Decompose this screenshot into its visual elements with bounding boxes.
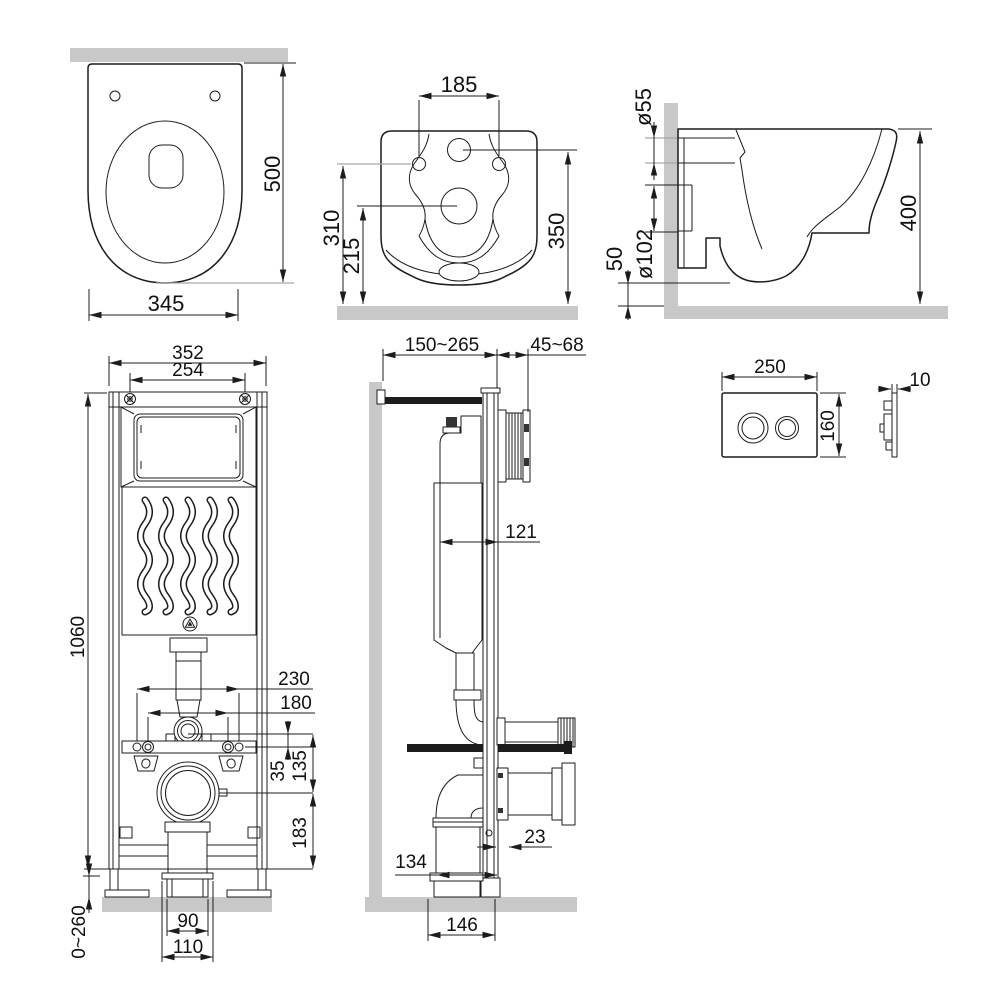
leg-left [110, 869, 118, 890]
bracket-right [219, 756, 243, 771]
clip-left [120, 827, 132, 838]
toilet-rear-outline [381, 131, 537, 285]
flush-outlet-pipe [497, 718, 575, 747]
foot-plate-right [227, 890, 271, 897]
dim-label-drain-to-base: 183 [290, 817, 311, 849]
flush-elbow [456, 700, 484, 745]
view-toilet-side: ø55 ø102 50 400 [602, 88, 948, 320]
dim-label-frame-height: 1060 [68, 616, 89, 658]
dim-side-depth: 400 [896, 129, 932, 304]
inspection-window [121, 407, 256, 487]
rear-outlet-bump [439, 263, 479, 281]
dim-label-plate-width: 250 [754, 357, 786, 378]
cistern-tank [122, 487, 256, 635]
frame-profile [481, 388, 500, 897]
wall-section [70, 48, 288, 62]
toilet-water-surface [149, 145, 183, 188]
dim-label-side-depth: 400 [896, 195, 921, 232]
dim-inlet-height: 350 [544, 152, 569, 304]
insulation-waves [141, 500, 236, 612]
dim-drain-to-base: 183 [290, 794, 313, 868]
dim-label-tank-depth: 121 [505, 522, 537, 543]
dim-holes-height: 310 [319, 166, 344, 304]
drawing-canvas: 500 345 185 310 [0, 0, 1000, 1000]
dim-label-finish-range: 45~68 [530, 335, 583, 356]
flush-plate-front [722, 393, 817, 457]
dim-label-wall-distance: 150~265 [405, 335, 480, 356]
toilet-body-outline [88, 64, 242, 283]
floor-strip-front [102, 897, 272, 912]
hanger-screw-right [240, 394, 251, 405]
toilet-side-outline [678, 129, 897, 282]
rear-bowl-outer [419, 236, 499, 263]
dim-label-flush-to-drain: 135 [290, 750, 311, 782]
dim-flush-to-drain: 135 [290, 735, 313, 792]
dim-toilet-width: 345 [89, 289, 238, 321]
dim-label-plate-thickness: 10 [909, 370, 930, 391]
dim-flush-offset: 35 [268, 721, 289, 782]
toilet-seat-ring [106, 121, 224, 263]
seat-hinge-hole-right [210, 91, 220, 101]
cistern-side [434, 416, 484, 745]
foot-plate-left [105, 890, 149, 897]
bracket-left [134, 756, 158, 771]
frame-foot [481, 878, 500, 897]
seat-hinge-hole-left [110, 91, 120, 101]
drain-elbow-pipe [430, 758, 483, 897]
dim-label-leg-range: 0~260 [69, 905, 90, 958]
dim-label-base-depth: 146 [446, 915, 478, 936]
view-toilet-rear: 185 310 215 350 [319, 72, 578, 320]
brand-logo-icon [183, 617, 197, 631]
flush-pipe-assembly [166, 638, 211, 745]
side-back-inner-line [736, 130, 762, 249]
view-toilet-top: 500 345 [70, 48, 296, 321]
flush-plate-side [880, 393, 897, 457]
rear-bowl-inner [425, 219, 493, 257]
dim-label-bolt-inner: 180 [280, 693, 312, 714]
dim-label-profile-depth: 23 [524, 827, 545, 848]
dim-plate-height: 160 [818, 393, 846, 457]
dim-leg-range: 0~260 [69, 862, 100, 959]
dim-plate-thickness: 10 [878, 370, 931, 396]
dim-label-inlet-dia: ø55 [631, 88, 656, 126]
view-frame-front: 352 254 1060 230 180 [68, 343, 315, 962]
dim-label-pipe-offset: 134 [395, 852, 427, 873]
dim-label-plate-height: 160 [818, 410, 839, 442]
dim-hole-spacing: 185 [419, 72, 499, 156]
inspection-bellows [498, 410, 530, 482]
dim-label-screw-spacing: 254 [172, 360, 204, 381]
clip-right [248, 827, 260, 838]
technical-drawing-sheet: 500 345 185 310 [0, 0, 1000, 1000]
drain-socket [157, 762, 227, 897]
dim-label-flush-offset: 35 [268, 760, 289, 781]
support-rod [377, 390, 482, 404]
floor-section-side [664, 306, 948, 319]
view-frame-side: 150~265 45~68 121 23 134 146 [365, 335, 586, 941]
mounting-plate [122, 741, 256, 753]
floor-section [337, 306, 578, 320]
dim-label-flange-width: 110 [173, 937, 203, 958]
wall-section-side [664, 103, 678, 306]
dim-label-toilet-width: 345 [148, 291, 185, 316]
dim-label-toilet-depth: 500 [260, 156, 285, 193]
dim-label-outlet-height: 50 [602, 247, 627, 271]
dim-screw-spacing: 254 [130, 360, 245, 392]
floor-section-frame [365, 897, 577, 912]
drain-outlet-pipe [497, 763, 575, 825]
leg-right [258, 869, 266, 890]
dim-label-bolt-outer: 230 [278, 669, 310, 690]
view-flush-plate: 250 160 10 [722, 357, 931, 457]
dim-wall-distance: 150~265 [383, 335, 497, 388]
side-outlet-detail [678, 185, 692, 231]
dim-plate-width: 250 [722, 357, 817, 391]
dim-label-inlet-height: 350 [544, 213, 569, 250]
dim-label-outlet-dia: ø102 [632, 229, 657, 279]
dim-finish-range: 45~68 [497, 335, 586, 412]
dim-label-pipe-width: 90 [177, 911, 198, 932]
hanger-screw-left [125, 394, 136, 405]
dim-label-drain-height: 215 [339, 238, 364, 275]
wall-section-frame [369, 382, 382, 897]
dim-label-hole-spacing: 185 [441, 72, 478, 97]
